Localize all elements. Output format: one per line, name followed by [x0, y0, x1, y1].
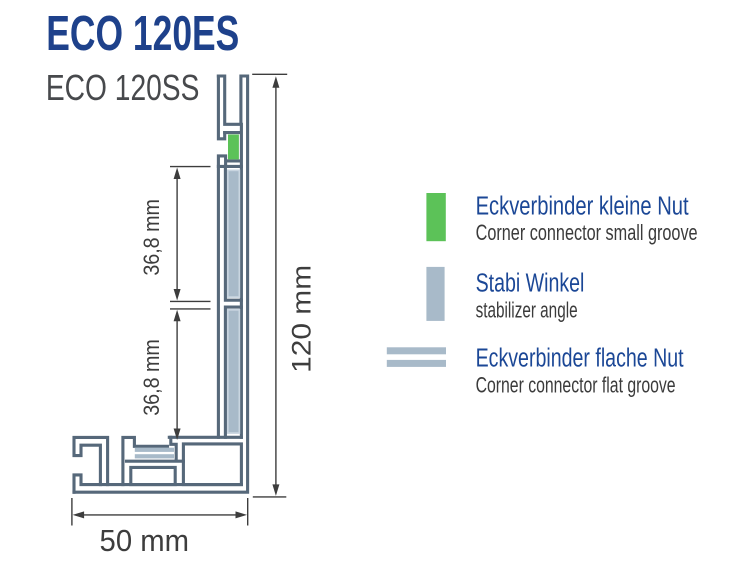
- svg-text:Eckverbinder flache Nut: Eckverbinder flache Nut: [476, 343, 685, 373]
- svg-text:stabilizer angle: stabilizer angle: [476, 298, 578, 323]
- svg-text:Eckverbinder kleine Nut: Eckverbinder kleine Nut: [476, 190, 690, 220]
- svg-text:Corner connector small groove: Corner connector small groove: [476, 220, 698, 245]
- svg-text:50 mm: 50 mm: [100, 524, 190, 558]
- svg-text:120 mm: 120 mm: [286, 265, 316, 373]
- svg-text:36,8 mm: 36,8 mm: [139, 199, 164, 276]
- svg-text:Corner connector flat groove: Corner connector flat groove: [476, 373, 676, 398]
- svg-text:36,8 mm: 36,8 mm: [139, 339, 164, 416]
- svg-text:ECO 120SS: ECO 120SS: [46, 67, 200, 108]
- svg-text:ECO 120ES: ECO 120ES: [46, 7, 239, 61]
- svg-text:Stabi Winkel: Stabi Winkel: [476, 268, 585, 298]
